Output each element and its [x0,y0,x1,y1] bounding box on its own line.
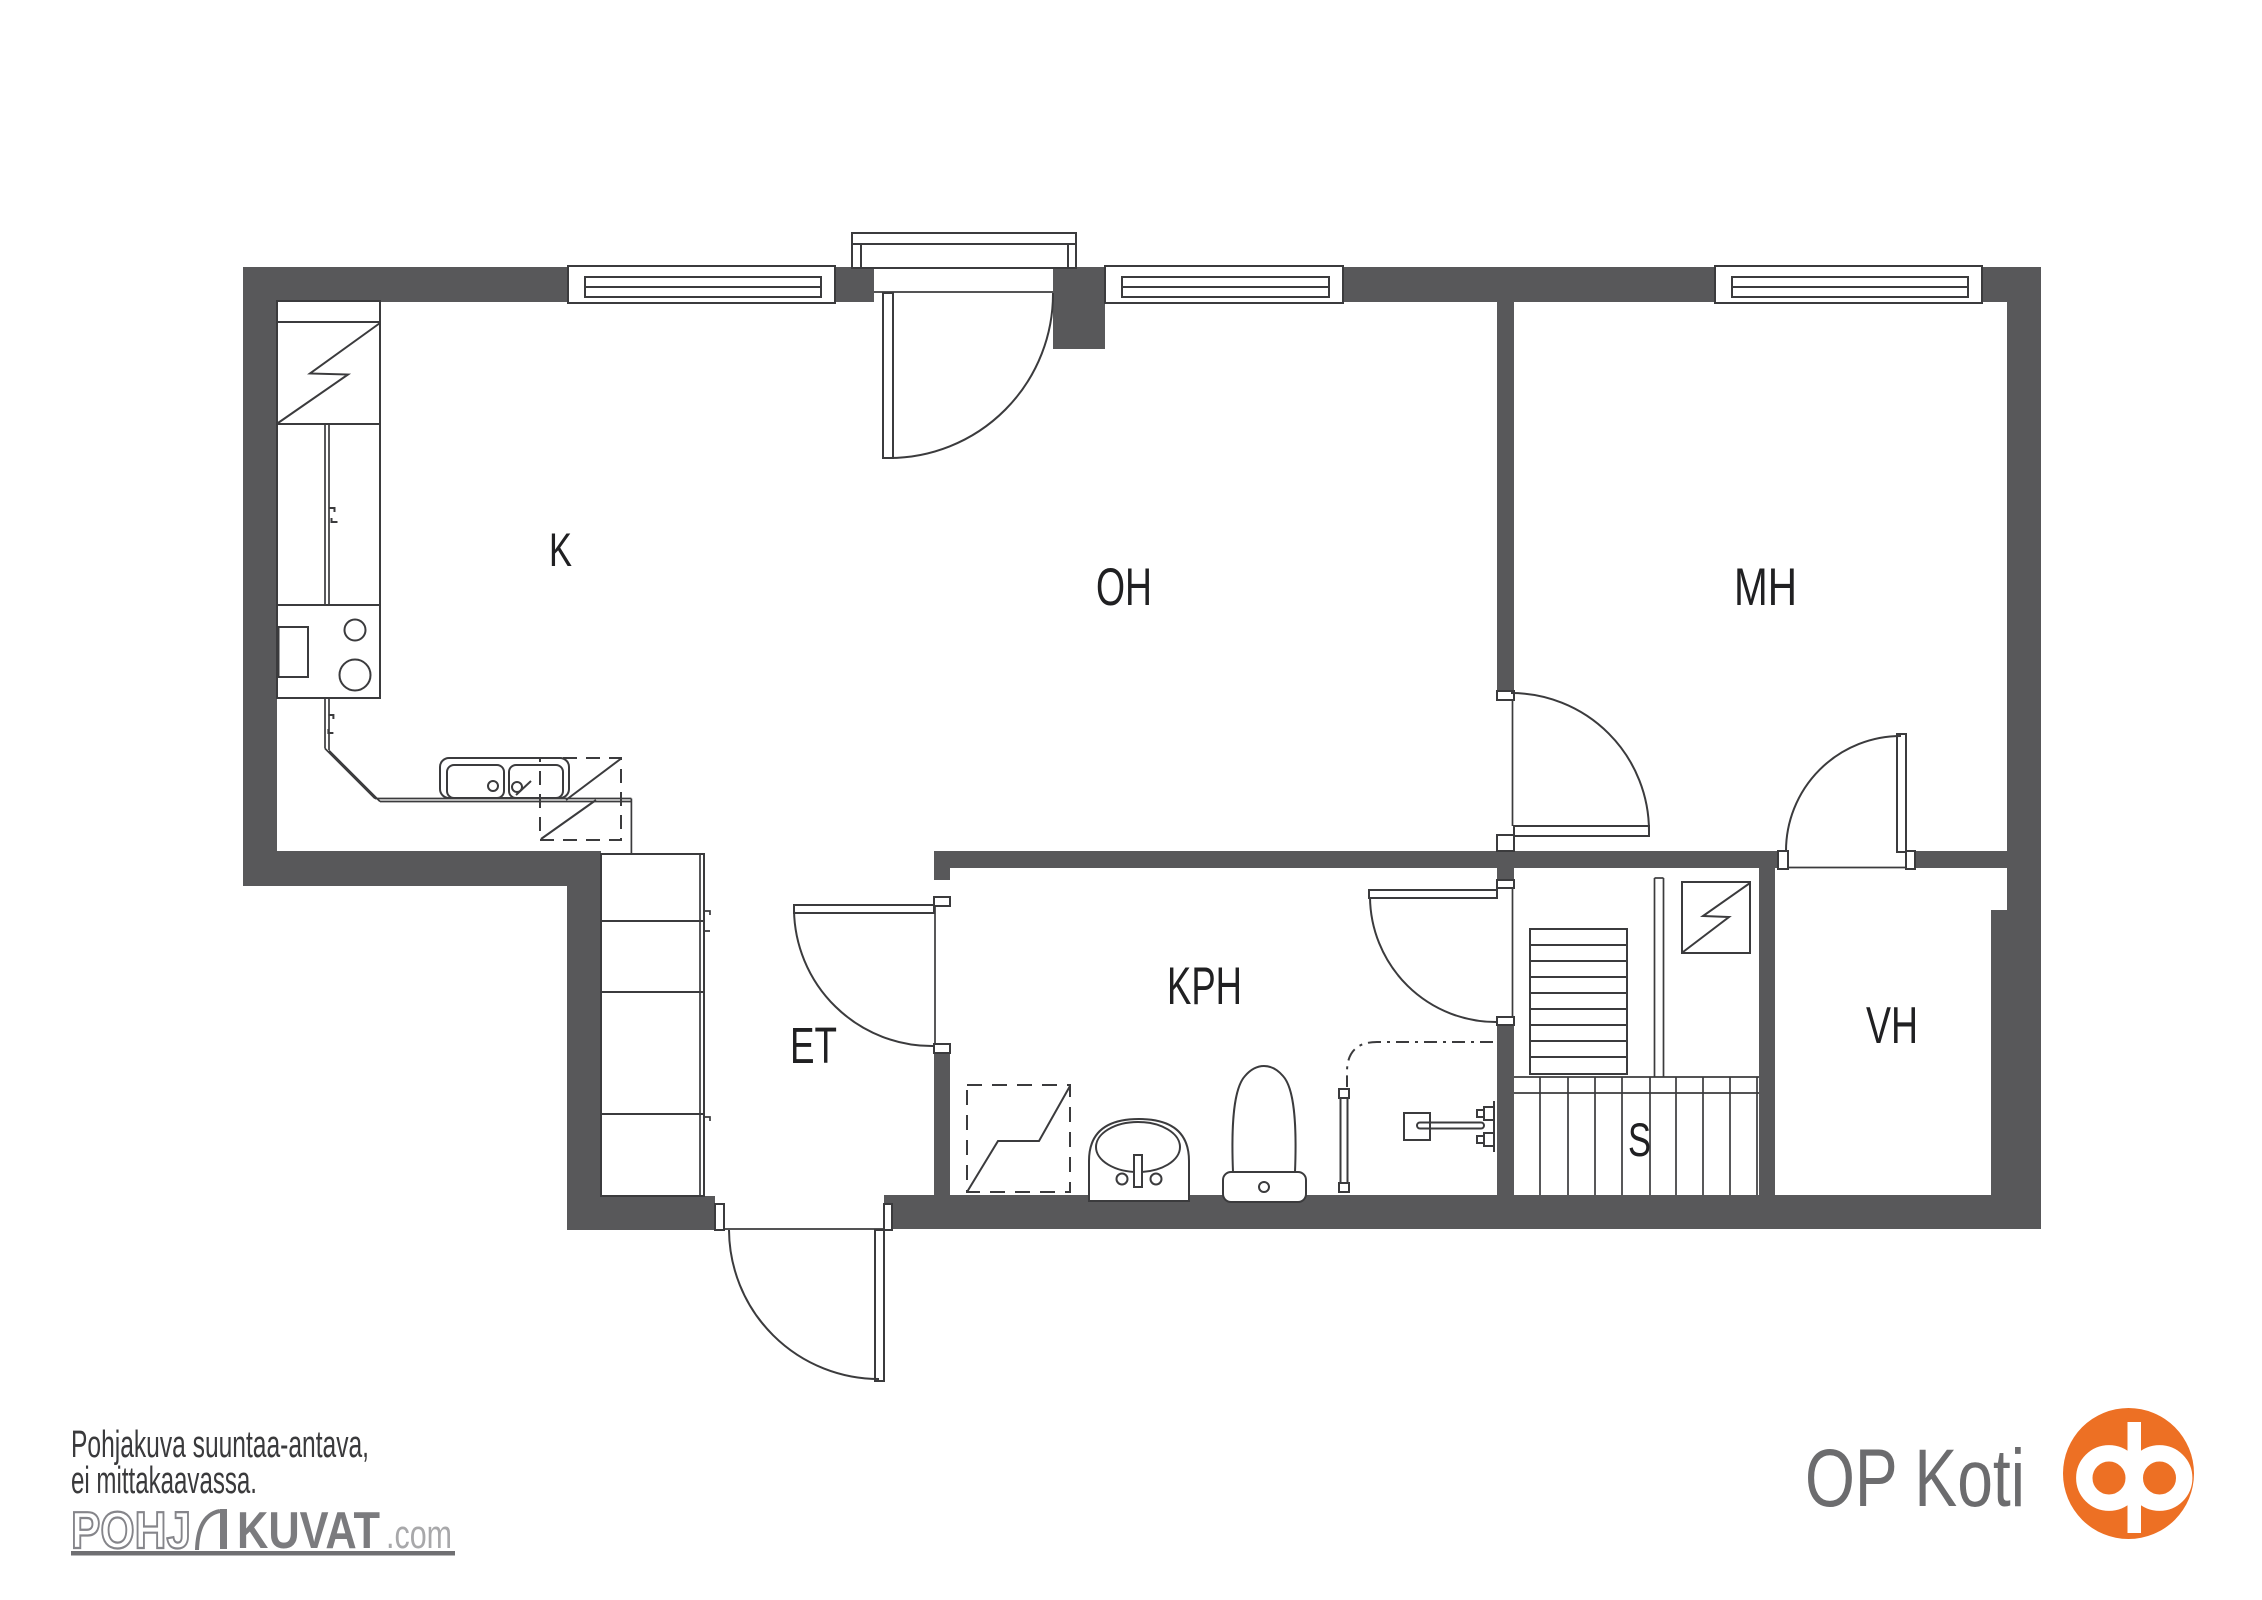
svg-text:VH: VH [1866,997,1918,1055]
svg-text:S: S [1628,1113,1651,1166]
svg-text:MH: MH [1734,558,1797,617]
svg-text:.com: .com [386,1513,452,1557]
svg-text:K: K [549,523,572,576]
svg-text:ei mittakaavassa.: ei mittakaavassa. [71,1460,257,1502]
svg-text:ET: ET [790,1017,837,1074]
svg-text:OP Koti: OP Koti [1805,1433,2025,1524]
svg-text:OH: OH [1096,558,1152,617]
svg-text:KPH: KPH [1167,957,1242,1016]
